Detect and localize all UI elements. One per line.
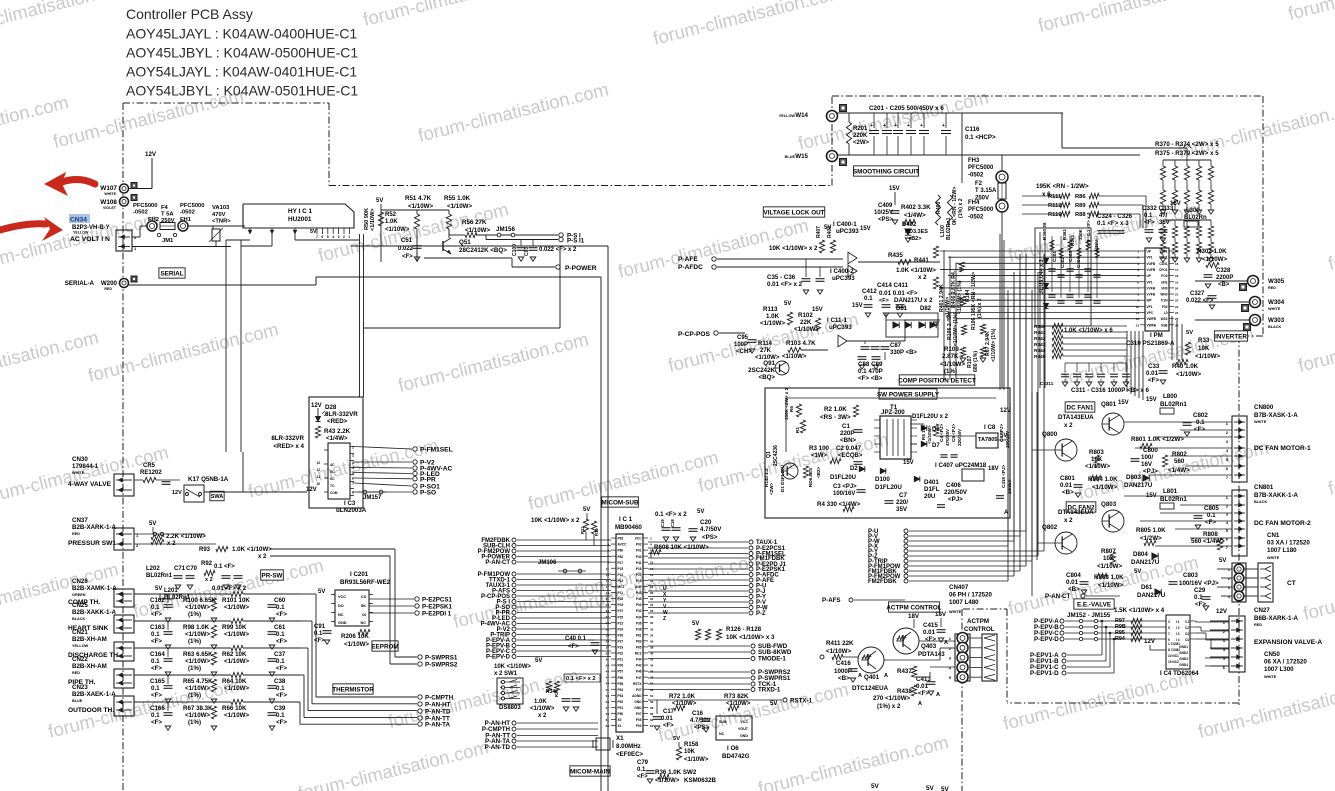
svg-text:C6 <PJ>: C6 <PJ>: [999, 424, 1004, 442]
svg-text:uPC393: uPC393: [832, 275, 855, 282]
svg-text:220/: 220/: [896, 499, 908, 506]
svg-text:<1/10W>: <1/10W>: [385, 227, 410, 233]
svg-text:0.1 <F> x 2: 0.1 <F> x 2: [566, 676, 596, 682]
svg-text:P-PR: P-PR: [420, 476, 436, 483]
svg-text:(1%): (1%): [188, 719, 201, 726]
svg-text:30: 30: [650, 621, 654, 625]
svg-text:INVERTER: INVERTER: [1215, 333, 1247, 340]
svg-text:WHITE: WHITE: [1268, 307, 1281, 311]
svg-text:CFO1: CFO1: [1159, 268, 1168, 272]
svg-text:53: 53: [606, 694, 610, 698]
svg-text:R411 22K: R411 22K: [826, 640, 854, 647]
svg-text:(1%): (1%): [944, 368, 957, 375]
svg-text:1.0K: 1.0K: [385, 219, 398, 225]
svg-text:Q802: Q802: [1042, 524, 1058, 531]
svg-text:OUTDOOR TH.: OUTDOOR TH.: [68, 707, 114, 714]
svg-text:P34: P34: [636, 615, 642, 619]
svg-text:WHITE: WHITE: [1254, 420, 1267, 424]
svg-text:5V: 5V: [871, 783, 880, 790]
svg-text:HU2001: HU2001: [288, 216, 312, 223]
svg-text:P27: P27: [636, 688, 642, 692]
svg-text:12V: 12V: [311, 403, 322, 409]
svg-text:C19: C19: [660, 519, 665, 527]
svg-text:BL02Rn1: BL02Rn1: [1160, 401, 1187, 408]
svg-text:5V: 5V: [697, 509, 704, 515]
svg-text:P57: P57: [618, 670, 624, 674]
svg-text:T 3.15A: T 3.15A: [975, 188, 997, 194]
svg-text:R108: R108: [944, 346, 959, 353]
svg-text:<RED>: <RED>: [327, 418, 348, 425]
svg-text:B6B-XARK-1-A: B6B-XARK-1-A: [1254, 615, 1299, 622]
svg-text:R402 3.3K: R402 3.3K: [901, 204, 931, 211]
svg-text:0.01 <F> x 2: 0.01 <F> x 2: [767, 281, 803, 288]
svg-text:R112: R112: [1048, 203, 1062, 209]
svg-text:P-AFDC: P-AFDC: [678, 264, 703, 271]
svg-text:1007 L300: 1007 L300: [1264, 666, 1294, 673]
svg-text:27K: 27K: [760, 348, 772, 354]
svg-text:6: 6: [321, 235, 323, 239]
svg-text:<1/10W>: <1/10W>: [1098, 582, 1123, 589]
svg-text:0.1: 0.1: [151, 685, 160, 692]
svg-text:R1: R1: [795, 427, 800, 433]
svg-text:COMP POSITION DETECT: COMP POSITION DETECT: [898, 377, 976, 384]
svg-text:12V: 12V: [145, 151, 157, 158]
svg-text:P44: P44: [636, 658, 642, 662]
svg-text:12V: 12V: [172, 490, 182, 496]
svg-text:21: 21: [1175, 293, 1179, 297]
svg-text:D1FL20U: D1FL20U: [830, 475, 856, 481]
svg-text:DO: DO: [338, 604, 344, 608]
svg-text:<B>: <B>: [1218, 282, 1230, 288]
svg-text:P27: P27: [636, 573, 642, 577]
svg-text:C302: C302: [1060, 257, 1065, 268]
svg-text:P32: P32: [636, 609, 642, 613]
svg-text:22K: 22K: [800, 319, 812, 326]
svg-text:250V: 250V: [161, 218, 175, 224]
svg-text:GND: GND: [634, 706, 642, 710]
svg-text:MB90460: MB90460: [615, 524, 642, 531]
svg-text:R67 38.3K: R67 38.3K: [183, 705, 213, 712]
svg-text:P32: P32: [618, 652, 624, 656]
svg-text:P83: P83: [618, 537, 624, 541]
svg-text:P50: P50: [618, 712, 624, 716]
svg-text:15V: 15V: [1170, 201, 1181, 207]
svg-text:C803: C803: [1183, 572, 1198, 579]
svg-text:P-AN-CT: P-AN-CT: [485, 560, 510, 566]
svg-text:5V: 5V: [318, 589, 325, 595]
svg-text:P-POWER: P-POWER: [565, 265, 597, 272]
svg-text:P54: P54: [618, 688, 624, 692]
svg-text:P61: P61: [636, 633, 642, 637]
svg-text:NC: NC: [338, 613, 344, 617]
svg-text:36: 36: [650, 639, 654, 643]
svg-text:P47: P47: [636, 676, 642, 680]
svg-text:58: 58: [650, 706, 654, 710]
svg-text:39: 39: [606, 651, 610, 655]
svg-text:L300: L300: [1186, 208, 1200, 214]
svg-text:P43: P43: [636, 591, 642, 595]
svg-text:UN1: UN1: [1161, 280, 1168, 284]
svg-text:P05: P05: [636, 718, 642, 722]
svg-text:<F>: <F>: [151, 692, 162, 699]
svg-text:R110: R110: [1048, 212, 1062, 218]
svg-text:GND: GND: [740, 734, 748, 738]
svg-text:C18: C18: [670, 519, 675, 527]
svg-text:<BN>: <BN>: [840, 437, 857, 444]
svg-text:<B>: <B>: [1068, 586, 1080, 593]
svg-text:<F>: <F>: [276, 638, 287, 645]
svg-text:BLUE: BLUE: [72, 699, 83, 703]
svg-text:P35: P35: [618, 633, 624, 637]
svg-text:5V: 5V: [583, 507, 590, 513]
svg-text:D401: D401: [924, 479, 939, 486]
svg-text:WHITE: WHITE: [104, 192, 116, 196]
svg-text:BD4742G: BD4742G: [722, 753, 750, 760]
svg-text:FH4: FH4: [968, 200, 980, 206]
svg-text:Z: Z: [663, 616, 666, 622]
svg-text:<B>: <B>: [838, 675, 850, 682]
svg-text:<F>: <F>: [276, 719, 287, 726]
svg-text:<1/10W>: <1/10W>: [1085, 463, 1110, 470]
svg-text:12: 12: [1136, 317, 1140, 321]
svg-text:DS8803: DS8803: [499, 705, 521, 711]
svg-text:D61: D61: [1141, 584, 1153, 591]
svg-text:I O6: I O6: [727, 745, 739, 752]
svg-text:5V: 5V: [1219, 558, 1226, 564]
svg-text:VILTAGE LOCK OUT: VILTAGE LOCK OUT: [764, 209, 825, 216]
svg-text:R98 1.0K: R98 1.0K: [183, 624, 210, 631]
svg-text:JM157: JM157: [363, 495, 382, 501]
svg-text:I C4 TD62064: I C4 TD62064: [1160, 670, 1199, 677]
svg-text:CONTROL: CONTROL: [964, 626, 995, 633]
svg-text:<B2>: <B2>: [816, 466, 821, 478]
svg-text:DAN217U: DAN217U: [1124, 482, 1153, 489]
svg-text:10K: 10K: [684, 749, 696, 755]
svg-text:19: 19: [606, 591, 610, 595]
svg-text:<F>: <F>: [276, 692, 287, 699]
svg-text:P11: P11: [618, 591, 624, 595]
svg-text:5V: 5V: [784, 301, 791, 307]
svg-text:CT: CT: [1287, 580, 1296, 587]
svg-text:100P: 100P: [734, 342, 748, 348]
svg-text:x 2: x 2: [258, 554, 267, 560]
svg-text:BLACK: BLACK: [1268, 325, 1282, 329]
svg-text:+: +: [942, 123, 945, 129]
svg-text:R56 27K: R56 27K: [462, 219, 487, 226]
svg-text:YELLOW: YELLOW: [779, 114, 796, 118]
svg-text:<F>: <F>: [1144, 220, 1155, 226]
svg-text:10/25V: 10/25V: [874, 210, 893, 216]
svg-text:RED: RED: [72, 532, 80, 536]
svg-text:RED: RED: [72, 671, 80, 675]
svg-text:uPC393: uPC393: [829, 324, 852, 331]
svg-text:C415: C415: [923, 622, 938, 629]
svg-text:C2: C2: [1185, 626, 1189, 630]
svg-text:15 NC2: 15 NC2: [1168, 660, 1179, 664]
svg-text:R407: R407: [816, 226, 822, 238]
svg-text:C162: C162: [150, 597, 165, 604]
svg-text:TRXD-1: TRXD-1: [758, 687, 781, 694]
svg-text:DTA143EUA: DTA143EUA: [1058, 414, 1094, 421]
svg-text:D803: D803: [1126, 474, 1141, 481]
svg-text:+: +: [883, 123, 886, 129]
svg-text:AOY54LJAYL : K04AW-0401HUE-C1: AOY54LJAYL : K04AW-0401HUE-C1: [126, 64, 357, 80]
svg-text:<1/10W>: <1/10W>: [224, 658, 249, 665]
svg-text:60: 60: [650, 712, 654, 716]
svg-text:R103 4.7K: R103 4.7K: [786, 340, 816, 347]
svg-text:D7: D7: [932, 443, 940, 449]
svg-text:R65 4.75K: R65 4.75K: [183, 678, 213, 685]
svg-text:MICOM-MAIN: MICOM-MAIN: [570, 768, 610, 775]
svg-text:D402: D402: [902, 222, 917, 228]
svg-text:N1B: N1B: [1161, 323, 1168, 327]
svg-text:B2B-XARK-1-A: B2B-XARK-1-A: [72, 524, 117, 531]
svg-text:PR-SW: PR-SW: [262, 572, 283, 579]
svg-text:SUB: SUB: [719, 720, 727, 724]
svg-text:D28: D28: [325, 404, 337, 411]
svg-text:A: A: [918, 701, 922, 707]
svg-text:X1: X1: [618, 724, 622, 728]
svg-text:R363: R363: [1070, 235, 1075, 246]
svg-text:W108: W108: [100, 199, 117, 206]
svg-text:5V: 5V: [155, 586, 162, 592]
svg-text:BL02Rn1: BL02Rn1: [146, 573, 173, 579]
svg-text:AOY45LJBYL : K04AW-0500HUE-C1: AOY45LJBYL : K04AW-0500HUE-C1: [126, 45, 358, 61]
svg-text:R206 10K: R206 10K: [341, 633, 369, 640]
svg-text:24: 24: [1175, 311, 1179, 315]
svg-text:C409: C409: [878, 203, 893, 209]
svg-text:20U: 20U: [924, 493, 936, 500]
svg-text:CN50: CN50: [1264, 651, 1280, 658]
svg-text:2.87K: 2.87K: [942, 353, 959, 360]
svg-text:THERMISTOR: THERMISTOR: [332, 686, 374, 693]
svg-text:C35 - C36: C35 - C36: [767, 274, 796, 281]
svg-text:C1N1: C1N1: [1159, 262, 1167, 266]
svg-text:VPC: VPC: [1147, 311, 1154, 315]
svg-text:<F>: <F>: [276, 665, 287, 672]
svg-text:W15: W15: [795, 153, 808, 160]
svg-text:P33: P33: [618, 646, 624, 650]
svg-text:100/16V: 100/16V: [1005, 430, 1010, 448]
svg-text:P37: P37: [618, 639, 624, 643]
svg-text:0.1 <HCP>: 0.1 <HCP>: [965, 134, 996, 141]
svg-text:R400: R400: [936, 201, 942, 214]
svg-text:VOUT: VOUT: [738, 727, 749, 731]
svg-text:0.1: 0.1: [276, 631, 285, 638]
svg-text:C87: C87: [890, 343, 902, 349]
svg-text:18: 18: [1175, 274, 1179, 278]
svg-text:DAN217U: DAN217U: [1131, 559, 1160, 566]
svg-text:x 3: x 3: [1086, 239, 1091, 246]
svg-text:EXPANSION VALVE-A: EXPANSION VALVE-A: [1254, 639, 1322, 646]
svg-text:<F>: <F>: [1205, 519, 1216, 526]
svg-text:100/16V: 100/16V: [833, 491, 855, 497]
svg-text:JM1: JM1: [162, 238, 174, 244]
svg-text:C301: C301: [1052, 251, 1057, 262]
svg-text:C60: C60: [274, 597, 286, 604]
svg-text:10: 10: [1136, 305, 1140, 309]
svg-text:A: A: [936, 692, 940, 698]
svg-text:P30: P30: [618, 664, 624, 668]
svg-text:R72 1.0K: R72 1.0K: [669, 693, 696, 700]
svg-text:P53: P53: [618, 694, 624, 698]
svg-text:18V: 18V: [908, 613, 920, 620]
svg-text:06 PH / 172520: 06 PH / 172520: [949, 592, 993, 599]
svg-text:L800: L800: [1163, 393, 1178, 400]
svg-text:<B2>: <B2>: [908, 236, 921, 242]
svg-text:<1/10W>: <1/10W>: [185, 685, 210, 692]
svg-text:<RED> x 4: <RED> x 4: [273, 443, 304, 450]
svg-text:F02: F02: [1162, 305, 1168, 309]
svg-text:uPC393: uPC393: [836, 228, 859, 235]
svg-text:-0502: -0502: [180, 210, 195, 216]
svg-text:P82: P82: [618, 555, 624, 559]
svg-text:SWA: SWA: [211, 494, 224, 500]
svg-text:<1/10W>: <1/10W>: [1097, 563, 1122, 570]
svg-text:C91: C91: [314, 624, 326, 630]
svg-text:49: 49: [606, 682, 610, 686]
svg-text:<B>: <B>: [1062, 489, 1074, 496]
svg-text:100K <2W> x 2: 100K <2W> x 2: [784, 387, 789, 420]
svg-text:R94: R94: [1115, 636, 1125, 642]
svg-text:23: 23: [606, 603, 610, 607]
svg-text:0.01: 0.01: [661, 716, 673, 722]
svg-text:D1FL20U x 2: D1FL20U x 2: [912, 414, 949, 420]
svg-text:54: 54: [650, 694, 654, 698]
svg-text:AVR: AVR: [635, 585, 642, 589]
svg-text:(1%) x 2: (1%) x 2: [958, 198, 964, 218]
svg-text:1.0K: 1.0K: [766, 313, 780, 320]
svg-text:<F>: <F>: [637, 774, 648, 780]
svg-text:<1/10W>: <1/10W>: [185, 712, 210, 719]
svg-text:P45: P45: [636, 597, 642, 601]
svg-text:R62 10K: R62 10K: [222, 651, 247, 658]
svg-text:C304: C304: [1076, 257, 1081, 268]
svg-text:15V: 15V: [903, 460, 914, 466]
svg-text:5V: 5V: [1186, 330, 1193, 336]
svg-text:0.1 <F>: 0.1 <F>: [214, 564, 235, 570]
svg-text:4: 4: [332, 235, 334, 239]
svg-text:R805 1.0K: R805 1.0K: [1136, 527, 1166, 534]
svg-text:7: 7: [316, 235, 318, 239]
svg-text:0.022: 0.022: [398, 246, 414, 252]
svg-text:R100 6.65K: R100 6.65K: [183, 597, 217, 604]
svg-text:CN800: CN800: [1254, 404, 1274, 411]
svg-text:17: 17: [1175, 268, 1179, 272]
svg-text:-0502: -0502: [968, 214, 984, 220]
svg-text:0.1: 0.1: [1144, 213, 1153, 219]
svg-text:1.5K <1/10W> x 4: 1.5K <1/10W> x 4: [1114, 607, 1165, 614]
svg-text:L0: L0: [1164, 311, 1168, 315]
svg-text:P-AN-HT: P-AN-HT: [425, 702, 451, 709]
svg-text:35V: 35V: [896, 506, 908, 513]
svg-text:10 NC1: 10 NC1: [1168, 654, 1179, 658]
svg-text:DAN217U x 2: DAN217U x 2: [894, 297, 933, 304]
svg-text:4C: 4C: [330, 463, 335, 467]
svg-text:Q800: Q800: [1042, 431, 1058, 438]
svg-text:62: 62: [650, 718, 654, 722]
svg-text:R437: R437: [897, 668, 912, 675]
svg-text:<1/10W>: <1/10W>: [826, 648, 851, 655]
svg-text:<F>: <F>: [918, 690, 929, 697]
svg-text:R158: R158: [684, 742, 699, 748]
svg-text:P-EPV-D: P-EPV-D: [486, 655, 511, 661]
svg-text:24: 24: [650, 603, 654, 607]
svg-text:P1N: P1N: [1161, 299, 1168, 303]
svg-text:RSTX: RSTX: [633, 682, 642, 686]
svg-text:F4: F4: [161, 205, 169, 211]
svg-text:MICOM-SUB: MICOM-SUB: [601, 499, 639, 506]
svg-text:RED: RED: [1254, 623, 1262, 627]
svg-text:R438: R438: [897, 688, 912, 695]
svg-text:06 XA / 172520: 06 XA / 172520: [1264, 659, 1307, 666]
svg-text:VWFB: VWFB: [1147, 317, 1157, 321]
svg-text:P15: P15: [618, 567, 624, 571]
svg-text:680 (1%): 680 (1%): [973, 351, 979, 372]
svg-text:2: 2: [343, 235, 345, 239]
svg-text:<1/10W>: <1/10W>: [1195, 353, 1220, 360]
svg-text:VIOLET: VIOLET: [103, 206, 117, 210]
svg-text:A: A: [858, 673, 862, 679]
svg-text:P42: P42: [636, 664, 642, 668]
svg-text:3: 3: [338, 235, 340, 239]
svg-text:R441: R441: [914, 257, 929, 264]
svg-text:P41: P41: [636, 561, 642, 565]
svg-text:33: 33: [606, 633, 610, 637]
svg-text:22: 22: [1175, 299, 1179, 303]
svg-text:<TNR>: <TNR>: [212, 219, 231, 225]
svg-text:D804: D804: [1133, 551, 1148, 558]
svg-text:CN801: CN801: [1254, 484, 1274, 491]
svg-text:K17 Q5NB-1A: K17 Q5NB-1A: [188, 476, 229, 483]
svg-text:<F> <B>: <F> <B>: [858, 375, 883, 382]
svg-text:C71: C71: [174, 566, 186, 572]
svg-text:SERIAL: SERIAL: [160, 270, 183, 277]
svg-text:6C: 6C: [330, 477, 335, 481]
svg-text:5V: 5V: [310, 229, 317, 235]
svg-text:C79: C79: [637, 760, 649, 766]
svg-text:P46: P46: [636, 670, 642, 674]
svg-text:GND1: GND1: [1179, 645, 1188, 649]
svg-text:AVCC: AVCC: [618, 543, 627, 547]
svg-text:W305: W305: [1268, 278, 1285, 285]
svg-text:P30: P30: [636, 603, 642, 607]
svg-text:x 2: x 2: [167, 540, 176, 547]
svg-text:12: 12: [316, 468, 320, 472]
svg-text:C805: C805: [1204, 505, 1219, 512]
svg-text:-0502: -0502: [133, 210, 148, 216]
svg-text:17: 17: [606, 585, 610, 589]
svg-text:I C3: I C3: [344, 500, 356, 507]
svg-text:C2 0.047: C2 0.047: [836, 445, 862, 452]
svg-text:C33: C33: [1148, 363, 1160, 370]
svg-text:C39: C39: [274, 705, 286, 712]
svg-text:GND2: GND2: [1179, 651, 1188, 655]
svg-text:0.1: 0.1: [276, 685, 285, 692]
svg-text:<F>: <F>: [568, 644, 579, 650]
svg-text:R43 2.2K: R43 2.2K: [324, 428, 351, 435]
svg-text:1.0K <1/10W>: 1.0K <1/10W>: [232, 546, 272, 553]
svg-text:C116: C116: [965, 126, 980, 133]
svg-text:I C400-2: I C400-2: [830, 268, 854, 275]
svg-text:VNC1: VNC1: [1159, 256, 1168, 260]
svg-text:C38: C38: [274, 678, 286, 685]
svg-text:220P: 220P: [840, 430, 854, 437]
svg-text:(1%): (1%): [188, 692, 201, 699]
svg-text:AOY54LJBYL : K04AW-0501HUE-C1: AOY54LJBYL : K04AW-0501HUE-C1: [126, 83, 358, 99]
svg-text:R52: R52: [385, 212, 397, 218]
svg-text:<1/10W>: <1/10W>: [782, 354, 807, 360]
